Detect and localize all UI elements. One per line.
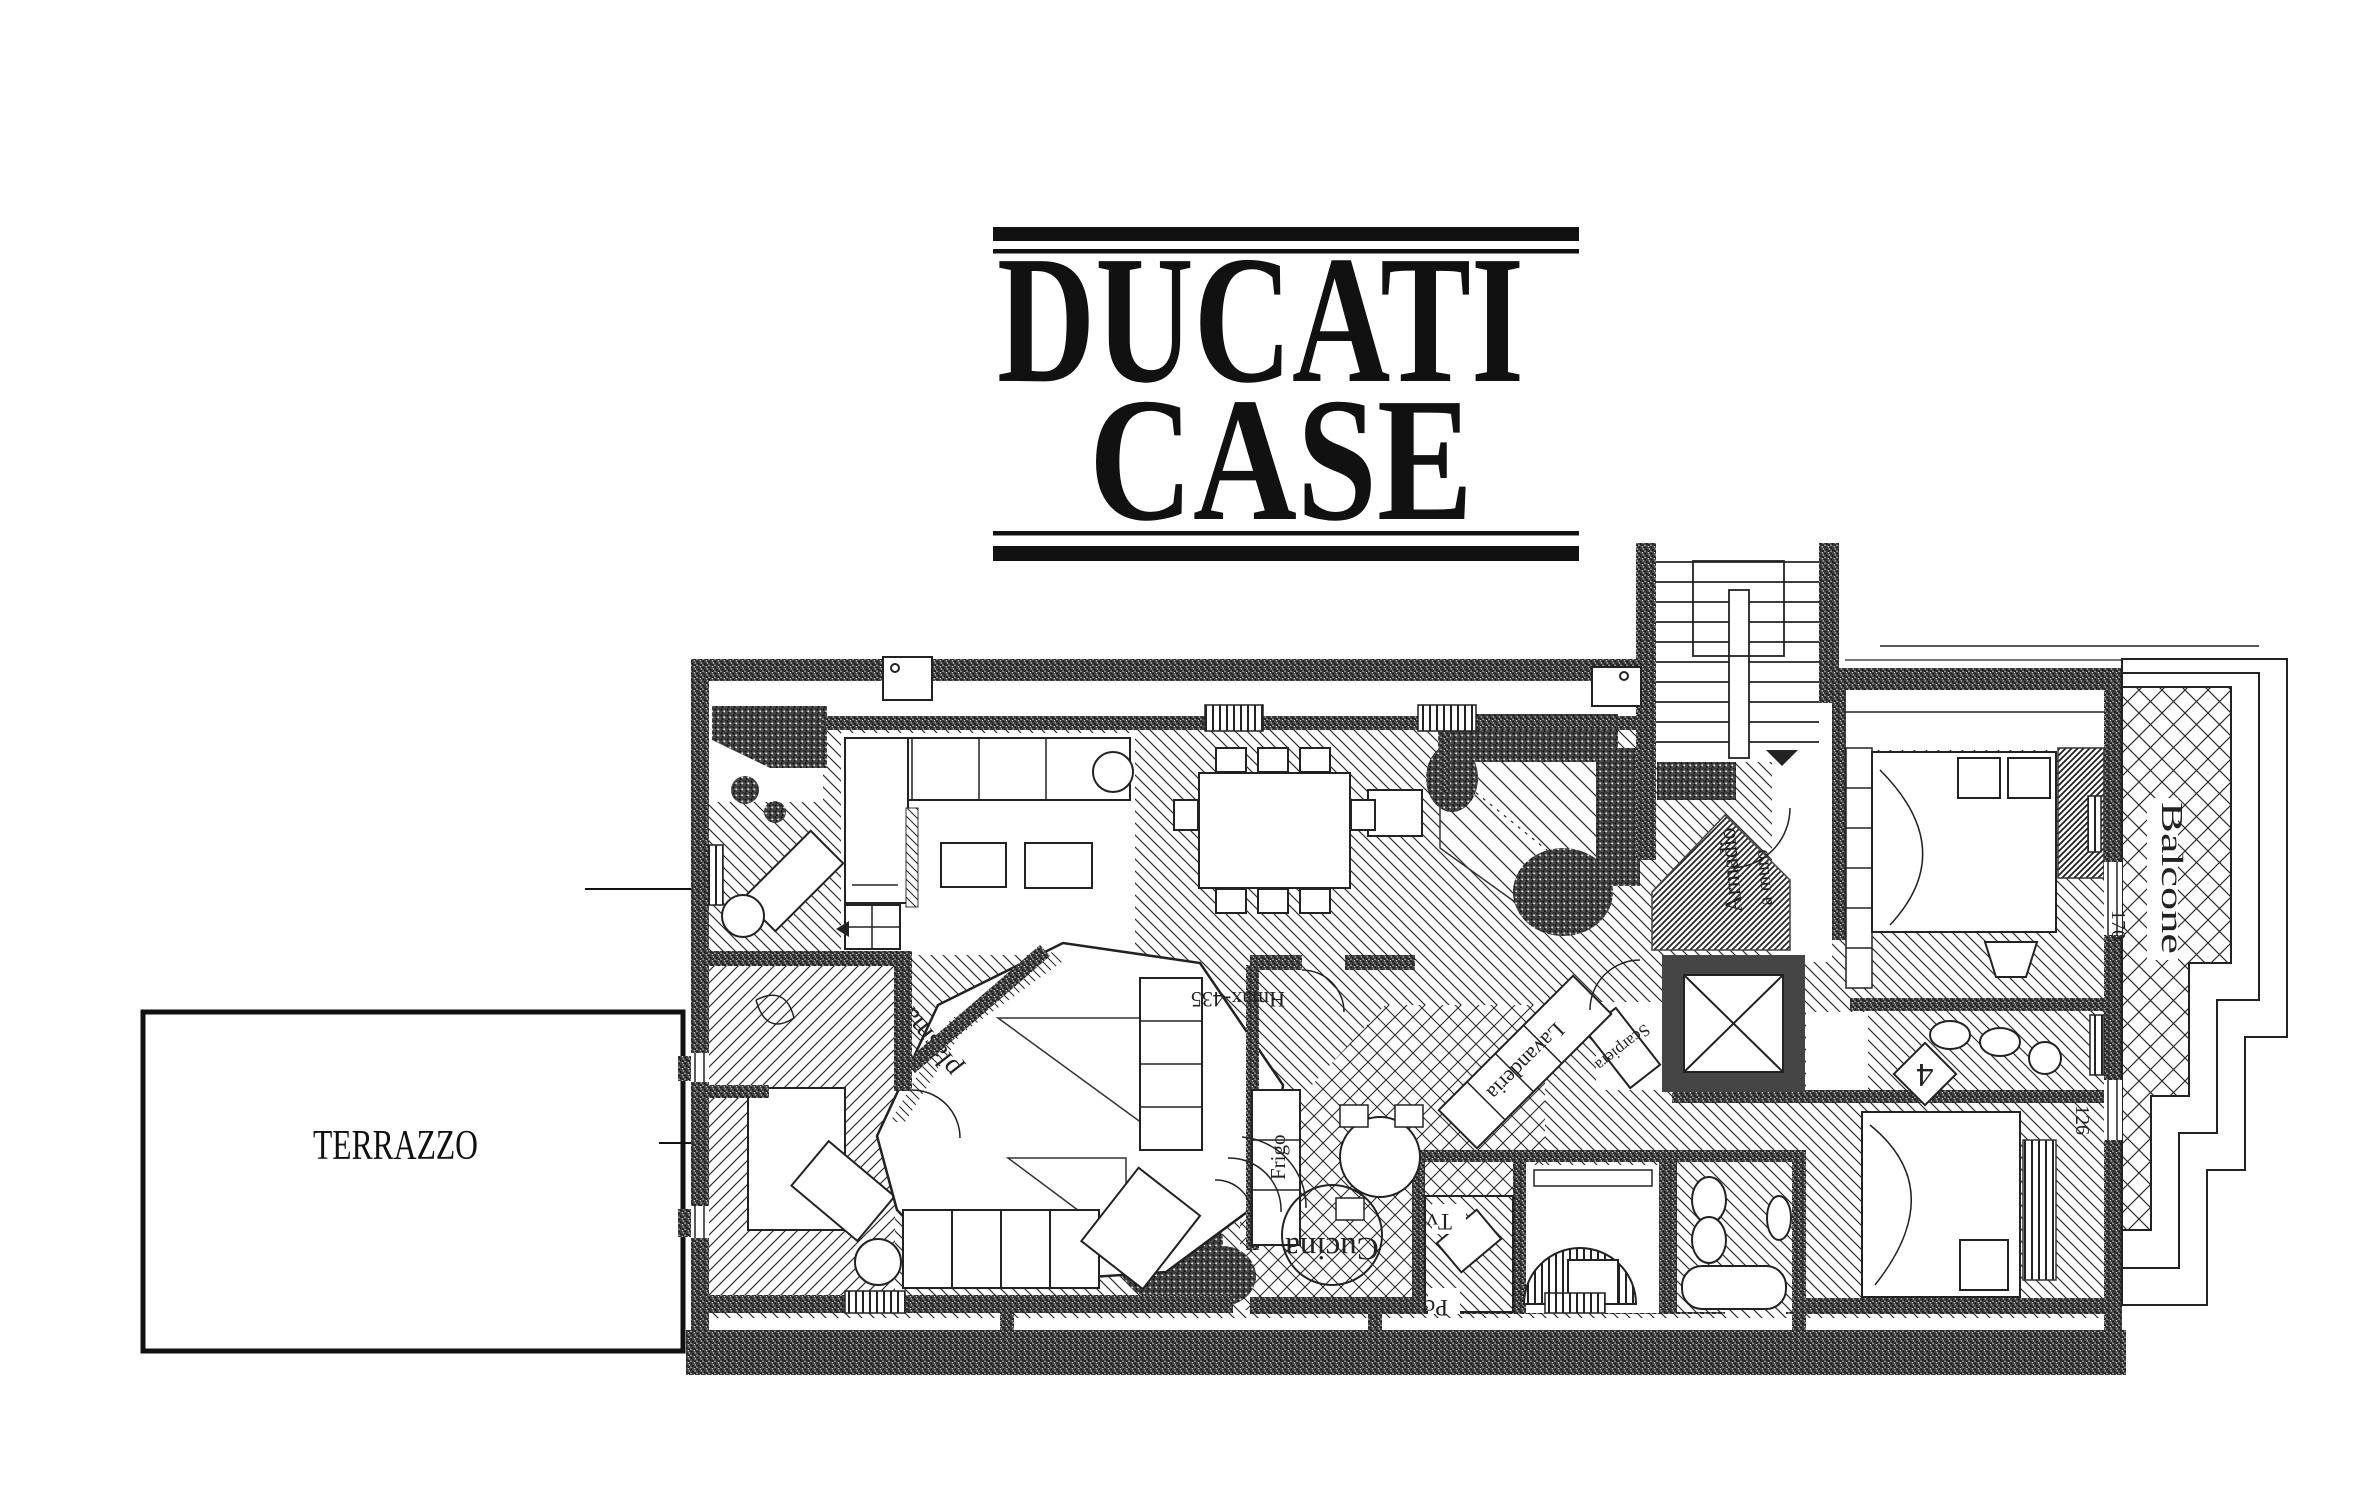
svg-text:Pc: Pc bbox=[1425, 1295, 1448, 1320]
svg-text:Cucina: Cucina bbox=[1285, 1230, 1379, 1266]
svg-text:170: 170 bbox=[2107, 910, 2129, 940]
svg-text:Tv: Tv bbox=[1426, 1209, 1452, 1234]
svg-text:CASE: CASE bbox=[1089, 362, 1473, 558]
svg-text:Hmax-435: Hmax-435 bbox=[1191, 987, 1285, 1012]
svg-text:126: 126 bbox=[2071, 1105, 2093, 1135]
svg-text:4: 4 bbox=[1917, 1056, 1934, 1093]
svg-text:TERRAZZO: TERRAZZO bbox=[313, 1123, 478, 1169]
svg-text:Balcone: Balcone bbox=[2155, 802, 2190, 954]
